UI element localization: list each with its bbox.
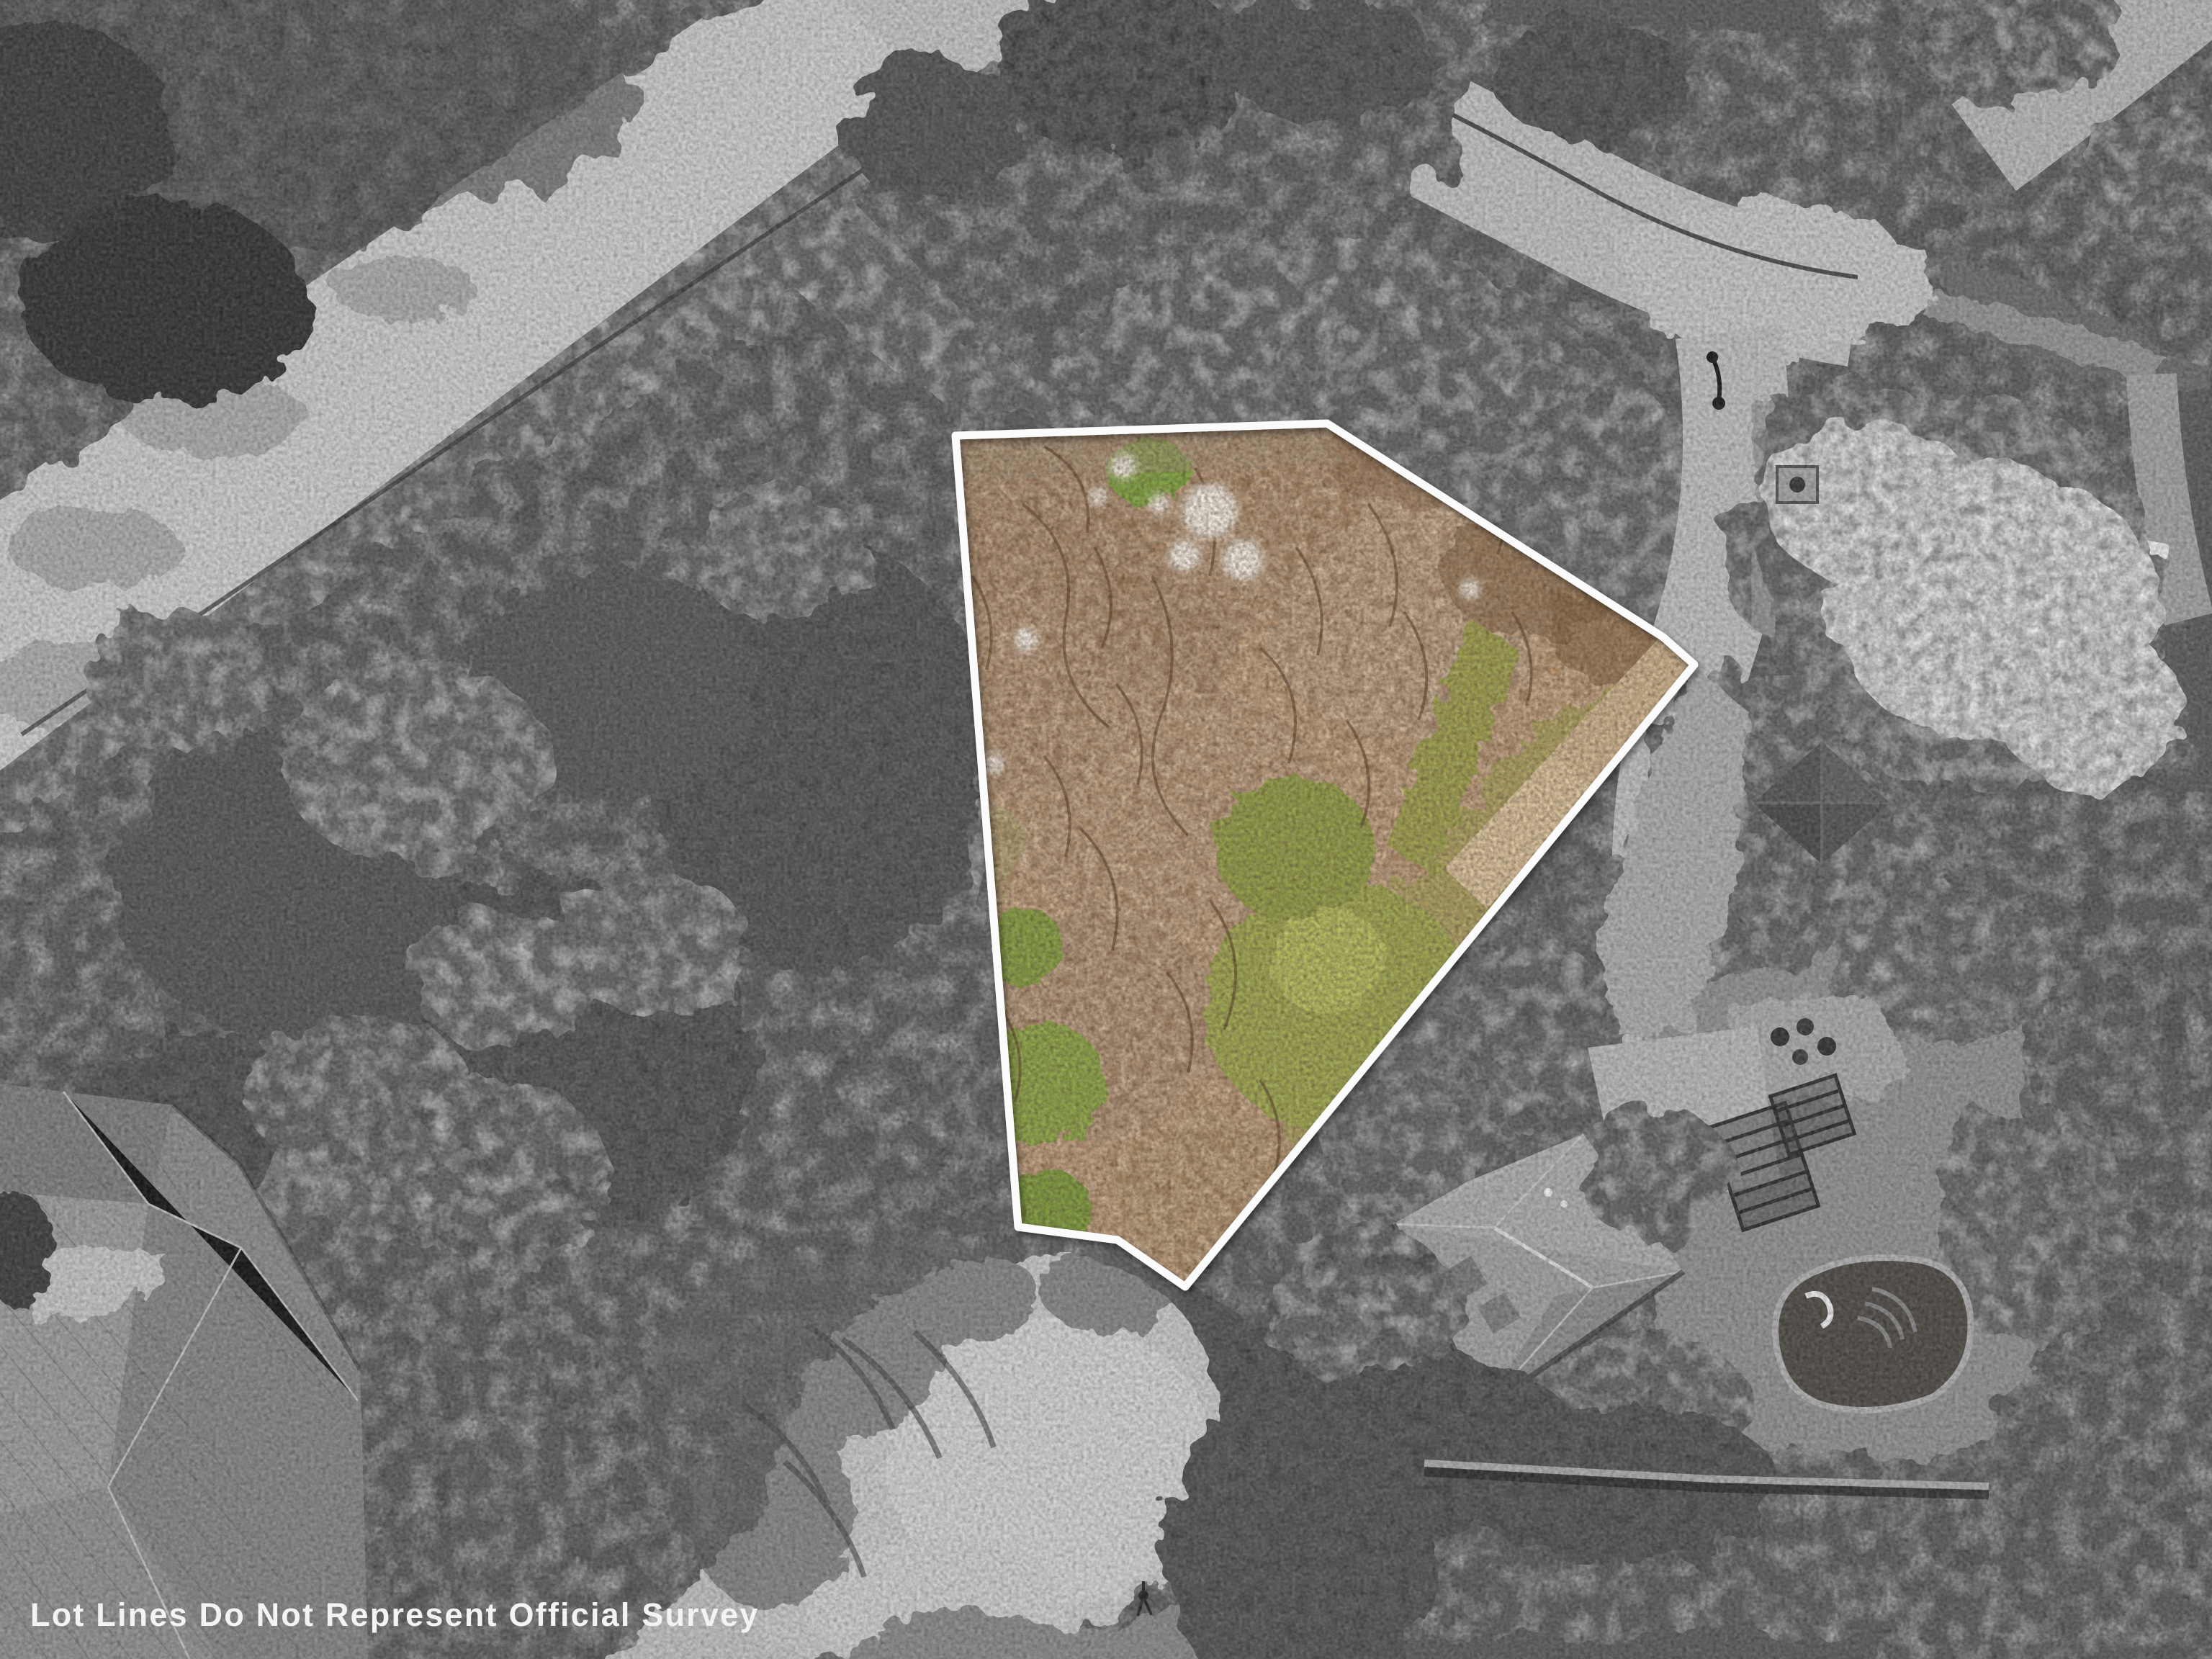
svg-text:Lot Lines Do Not Represent Off: Lot Lines Do Not Represent Official Surv… bbox=[30, 1596, 760, 1633]
